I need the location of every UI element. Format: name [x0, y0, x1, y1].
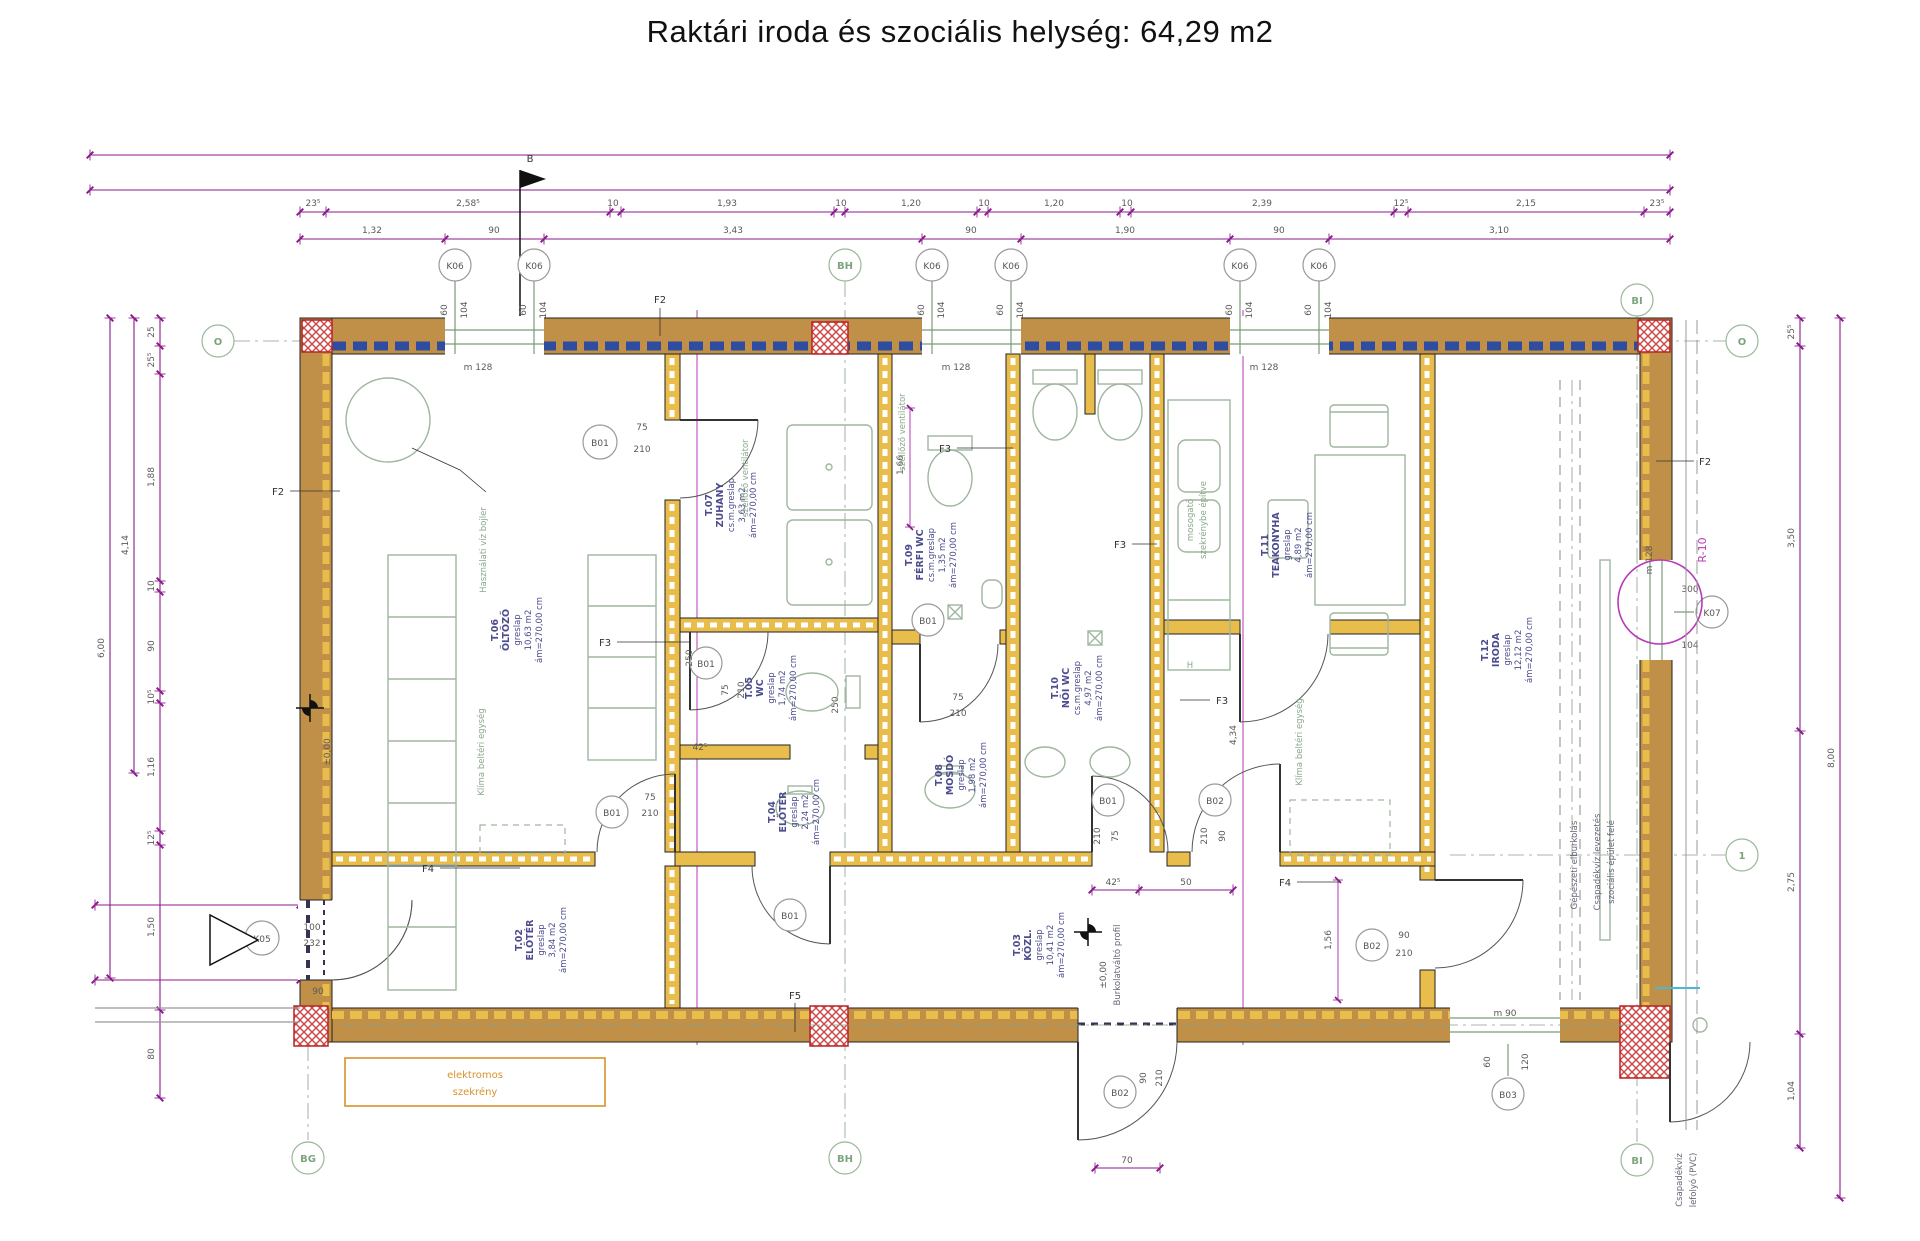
svg-text:ám=270,00 cm: ám=270,00 cm: [789, 655, 799, 721]
svg-text:ám=270,00 cm: ám=270,00 cm: [1057, 912, 1067, 978]
wall-openings: [298, 316, 1674, 1044]
door-b01-ferfiwc: B01 75 210: [912, 604, 998, 722]
svg-text:F5: F5: [789, 991, 801, 1002]
klima-unit-dashed: [1290, 800, 1390, 855]
svg-text:TEAKONYHA: TEAKONYHA: [1271, 512, 1282, 578]
csapadek-label: Csapadékvíz levezetés: [1592, 813, 1603, 910]
dim-label: 25⁵: [1787, 324, 1797, 339]
downpipe-label: Csapadékvíz: [1674, 1153, 1685, 1207]
dim-label: 80: [147, 1048, 157, 1060]
svg-text:elektromos: elektromos: [447, 1070, 503, 1081]
boiler-label: Használati víz bojler: [479, 507, 489, 593]
dim-label: 2,58⁵: [456, 199, 480, 209]
dim-label: 10: [607, 199, 619, 209]
svg-text:cs.m.greslap: cs.m.greslap: [727, 478, 737, 532]
svg-text:T.10: T.10: [1050, 677, 1061, 699]
svg-text:F3: F3: [939, 444, 951, 455]
svg-text:60: 60: [917, 304, 927, 316]
dim-label: 1,90: [1115, 226, 1135, 236]
svg-text:ZUHANY: ZUHANY: [715, 483, 726, 528]
electrical-cabinet: elektromos szekrény: [345, 1058, 605, 1106]
dim-label: 1,50: [147, 917, 157, 937]
svg-text:greslap: greslap: [1503, 634, 1513, 665]
svg-text:210: 210: [1093, 827, 1103, 844]
dim-label: 1,88: [147, 467, 157, 487]
room-label-t05: T.05WC greslap1,74 m2 ám=270,00 cm: [744, 655, 799, 721]
svg-text:90: 90: [1139, 1072, 1149, 1084]
svg-text:210: 210: [1155, 1069, 1165, 1086]
dim-label: 1,04: [1787, 1081, 1797, 1101]
svg-text:T.06: T.06: [490, 619, 501, 641]
downpipe-label: lefolyó (PVC): [1688, 1153, 1699, 1208]
klima-unit-dashed: [480, 825, 565, 853]
svg-text:ám=270,00 cm: ám=270,00 cm: [559, 907, 569, 973]
svg-text:ám=270,00 cm: ám=270,00 cm: [979, 742, 989, 808]
svg-text:MOSDÓ: MOSDÓ: [944, 755, 956, 795]
grid-bubble-o-left: O: [214, 337, 223, 348]
dim-label: 2,15: [1516, 199, 1536, 209]
vent-symbol: [1088, 631, 1102, 645]
svg-text:KÖZL.: KÖZL.: [1023, 929, 1034, 961]
dim-label: 1,20: [901, 199, 921, 209]
svg-text:3,84 m2: 3,84 m2: [548, 922, 558, 957]
dim-label: 10: [978, 199, 990, 209]
svg-text:4,89 m2: 4,89 m2: [1294, 527, 1304, 562]
svg-text:210: 210: [1395, 949, 1412, 959]
sill-label: m 128: [942, 363, 971, 373]
room-label-t06: T.06ÖLTÖZŐ greslap10,63 m2 ám=270,00 cm: [490, 597, 545, 663]
dim-label: 8,00: [1827, 748, 1837, 768]
svg-text:60: 60: [519, 304, 529, 316]
dim-label: 6,00: [97, 638, 107, 658]
boiler: [346, 378, 486, 492]
svg-text:B01: B01: [697, 660, 715, 670]
window-k06-2: [922, 316, 1021, 356]
svg-text:T.12: T.12: [1480, 639, 1491, 661]
dim-label: 23⁵: [305, 199, 320, 209]
svg-text:greslap: greslap: [957, 759, 967, 790]
shower-trays: [787, 425, 872, 605]
sink-label: mosogató: [1185, 499, 1196, 541]
svg-text:F3: F3: [599, 638, 611, 649]
svg-text:T.11: T.11: [1260, 534, 1271, 556]
svg-text:FÉRFI WC: FÉRFI WC: [914, 529, 926, 580]
annotations: Használati víz bojler szellőző ventiláto…: [272, 295, 1711, 1207]
dim-label: 2,75: [1787, 872, 1797, 892]
svg-text:ám=270,00 cm: ám=270,00 cm: [535, 597, 545, 663]
left-dimension-lines: 25 25⁵ 1,88 10 90 10⁵ 1,16 12⁵ 1,50 80 4…: [95, 318, 300, 1098]
svg-text:B01: B01: [603, 809, 621, 819]
svg-text:1,74 m2: 1,74 m2: [778, 670, 788, 705]
svg-text:m 90: m 90: [1493, 1009, 1516, 1019]
grid-bubble-bg-bottom: BG: [300, 1154, 316, 1165]
h-mark: H: [1187, 661, 1193, 671]
sill-label: m 128: [464, 363, 493, 373]
svg-text:T.02: T.02: [514, 929, 525, 951]
svg-text:50: 50: [1180, 878, 1192, 888]
door-porch: [1670, 1042, 1750, 1122]
dim-label: 1,32: [362, 226, 382, 236]
dim-label: 12⁵: [147, 830, 157, 845]
svg-text:T.08: T.08: [934, 764, 945, 786]
window-k06-3: [1230, 316, 1329, 356]
svg-text:K07: K07: [1703, 609, 1720, 619]
svg-text:ám=270,00 cm: ám=270,00 cm: [812, 779, 822, 845]
room-label-t03: T.03KÖZL. greslap10,41 m2 ám=270,00 cm: [1012, 912, 1067, 978]
svg-text:2,24 m2: 2,24 m2: [801, 794, 811, 829]
door-teakonyha-south: [1240, 634, 1328, 722]
svg-text:greslap: greslap: [537, 924, 547, 955]
window-k06-1: [445, 316, 544, 356]
door-b01-eloter: B01: [752, 866, 830, 944]
dim-label: 2,39: [1252, 199, 1272, 209]
dim-label: 90: [1273, 226, 1285, 236]
svg-text:B01: B01: [919, 617, 937, 627]
svg-text:greslap: greslap: [1283, 529, 1293, 560]
svg-text:42⁵: 42⁵: [1105, 878, 1120, 888]
dim-label: 10⁵: [147, 689, 157, 704]
svg-text:K06: K06: [1310, 262, 1328, 272]
svg-text:K06: K06: [923, 262, 941, 272]
svg-text:T.07: T.07: [704, 494, 715, 516]
outer-walls: [300, 318, 1672, 1042]
sill-label: m 128: [1250, 363, 1279, 373]
svg-text:cs.m.greslap: cs.m.greslap: [927, 528, 937, 582]
svg-text:210: 210: [949, 709, 966, 719]
svg-text:104: 104: [1016, 301, 1026, 318]
r10-label: R-10: [1696, 537, 1709, 562]
dim-label: 25⁵: [147, 352, 157, 367]
entrance-arrow: [210, 915, 258, 965]
csapadek-label: szociális épület felé: [1606, 820, 1617, 904]
door-b02-rear: B02 90 210 70: [1078, 1042, 1177, 1168]
svg-text:10,41 m2: 10,41 m2: [1046, 925, 1056, 966]
grid-bubble-o-right: O: [1738, 337, 1747, 348]
svg-text:K06: K06: [446, 262, 464, 272]
vent-label: szellőző ventilátor: [741, 439, 751, 517]
svg-text:szekrény: szekrény: [453, 1086, 498, 1098]
grid-bubble-1-right: 1: [1739, 851, 1746, 862]
svg-text:4,34: 4,34: [1229, 725, 1239, 745]
dim-label: 90: [147, 640, 157, 652]
svg-text:±0,00: ±0,00: [323, 738, 333, 766]
svg-text:60: 60: [996, 304, 1006, 316]
grid-bubble-bi-bottom: BI: [1631, 1156, 1642, 1167]
grid-bubble-bh-top: BH: [837, 261, 853, 272]
right-dimension-lines: 25⁵ 3,50 2,75 1,04 8,00: [1787, 318, 1840, 1198]
svg-text:75: 75: [952, 693, 963, 703]
dim-label: 90: [488, 226, 500, 236]
svg-text:B01: B01: [1099, 797, 1117, 807]
dim-label: 10: [147, 580, 157, 592]
dim-label: 3,43: [723, 226, 743, 236]
svg-text:greslap: greslap: [1035, 929, 1045, 960]
svg-text:±0,00: ±0,00: [1099, 961, 1109, 989]
svg-text:F4: F4: [422, 864, 434, 875]
dim-label: 1,93: [717, 199, 737, 209]
lockers-right: [588, 555, 656, 760]
svg-text:104: 104: [937, 301, 947, 318]
svg-text:300: 300: [1681, 585, 1698, 595]
svg-text:70: 70: [1121, 1156, 1133, 1166]
svg-text:210: 210: [641, 809, 658, 819]
door-b02-iroda: B02 90 210 1,56: [1324, 880, 1523, 968]
svg-text:B02: B02: [1111, 1089, 1129, 1099]
svg-text:ELŐTÉR: ELŐTÉR: [524, 919, 536, 961]
rc-columns: [294, 320, 1670, 1078]
svg-text:F4: F4: [1279, 878, 1291, 889]
svg-text:B02: B02: [1363, 942, 1381, 952]
svg-text:B01: B01: [781, 912, 799, 922]
door-b01-t02: B01 75 210: [596, 774, 675, 852]
svg-text:120: 120: [1521, 1053, 1531, 1070]
svg-text:ám=270,00 cm: ám=270,00 cm: [1305, 512, 1315, 578]
svg-text:ám=270,00 cm: ám=270,00 cm: [1095, 655, 1105, 721]
elevation-marker: ±0,00: [1074, 918, 1109, 989]
svg-text:B03: B03: [1499, 1091, 1517, 1101]
svg-text:210: 210: [1200, 827, 1210, 844]
svg-text:greslap: greslap: [513, 614, 523, 645]
svg-text:F3: F3: [1216, 696, 1228, 707]
svg-text:60: 60: [1304, 304, 1314, 316]
dim-label: 25: [147, 326, 157, 337]
svg-text:K06: K06: [1002, 262, 1020, 272]
svg-text:104: 104: [460, 301, 470, 318]
svg-text:K06: K06: [525, 262, 543, 272]
floor-plan-page: Raktári iroda és szociális helység: 64,2…: [0, 0, 1920, 1241]
gepeszet-label: Gépészeti elburkolás: [1569, 820, 1580, 909]
window-k07: [1638, 560, 1674, 660]
window-markers: K06 60 104 K06 60 104 K06 60 104 K06 60 …: [439, 249, 1728, 651]
svg-text:T.05: T.05: [744, 677, 755, 699]
svg-text:greslap: greslap: [790, 796, 800, 827]
svg-text:F2: F2: [272, 487, 284, 498]
svg-text:75: 75: [644, 793, 655, 803]
svg-text:ELŐTÉR: ELŐTÉR: [777, 791, 789, 833]
room-label-t12: T.12IRODA greslap12,12 m2 ám=270,00 cm: [1480, 617, 1535, 683]
room-label-t10: T.10NŐI WC cs.m.greslap4,97 m2 ám=270,00…: [1050, 655, 1105, 721]
room-label-t02: T.02ELŐTÉR greslap3,84 m2 ám=270,00 cm: [514, 907, 569, 973]
svg-text:4,97 m2: 4,97 m2: [1084, 670, 1094, 705]
klima-label: Klíma beltéri egység: [476, 708, 487, 795]
svg-text:250: 250: [685, 649, 695, 666]
svg-text:B01: B01: [591, 439, 609, 449]
svg-text:K06: K06: [1231, 262, 1249, 272]
floor-plan-canvas: 23⁵ 2,58⁵ 10 1,93 10 1,20 10 1,20 10 2,3…: [0, 0, 1920, 1241]
vent-label: szellőző ventilátor: [898, 393, 908, 471]
svg-text:B02: B02: [1206, 797, 1224, 807]
dim-label: 10: [1121, 199, 1133, 209]
svg-text:T.04: T.04: [767, 801, 778, 823]
room-label-t04: T.04ELŐTÉR greslap2,24 m2 ám=270,00 cm: [767, 779, 822, 845]
svg-text:75: 75: [636, 423, 647, 433]
washbasins-t10: [1025, 747, 1130, 777]
svg-text:100: 100: [303, 923, 320, 933]
svg-text:104: 104: [1324, 301, 1334, 318]
svg-text:90: 90: [312, 987, 324, 997]
dim-label: 4,14: [121, 535, 131, 555]
svg-text:42⁵: 42⁵: [692, 743, 707, 753]
svg-text:cs.m.greslap: cs.m.greslap: [1073, 661, 1083, 715]
dim-label: 23⁵: [1649, 199, 1664, 209]
svg-text:210: 210: [633, 445, 650, 455]
grid-bubble-bh-bottom: BH: [837, 1154, 853, 1165]
svg-text:ám=270,00 cm: ám=270,00 cm: [949, 522, 959, 588]
dim-label: 3,50: [1787, 528, 1797, 548]
dim-label: 90: [965, 226, 977, 236]
dim-label: 1,16: [147, 757, 157, 777]
svg-text:1,56: 1,56: [1324, 930, 1334, 950]
svg-text:90: 90: [1218, 830, 1228, 842]
svg-text:WC: WC: [755, 679, 766, 696]
svg-text:75: 75: [721, 684, 731, 695]
svg-text:1,98 m2: 1,98 m2: [968, 757, 978, 792]
svg-text:greslap: greslap: [767, 672, 777, 703]
grid-bubble-bi-top: BI: [1631, 296, 1642, 307]
svg-text:ám=270,00 cm: ám=270,00 cm: [1525, 617, 1535, 683]
klima-label: Klíma beltéri egység: [1294, 698, 1305, 785]
svg-text:90: 90: [1398, 931, 1410, 941]
svg-text:F2: F2: [654, 295, 666, 306]
lockers-left: [388, 555, 456, 990]
svg-text:104: 104: [539, 301, 549, 318]
svg-text:104: 104: [1245, 301, 1255, 318]
dim-label: 3,10: [1489, 226, 1509, 236]
top-dimension-lines: 23⁵ 2,58⁵ 10 1,93 10 1,20 10 1,20 10 2,3…: [90, 155, 1670, 239]
svg-text:12,12 m2: 12,12 m2: [1514, 630, 1524, 671]
section-flag-b: B: [527, 154, 534, 165]
dim-label: 1,20: [1044, 199, 1064, 209]
svg-text:60: 60: [440, 304, 450, 316]
profile-label: Burkolatváltó profil: [1112, 925, 1123, 1006]
room-label-t09: T.09FÉRFI WC cs.m.greslap1,35 m2 ám=270,…: [904, 522, 959, 588]
room-label-t08: T.08MOSDÓ greslap1,98 m2 ám=270,00 cm: [934, 742, 989, 808]
urinal-t09: [982, 580, 1002, 608]
sink-label: szekrénybe építve: [1198, 481, 1209, 559]
svg-text:10,63 m2: 10,63 m2: [524, 610, 534, 651]
svg-text:T.03: T.03: [1012, 934, 1023, 956]
svg-text:F2: F2: [1699, 457, 1711, 468]
dim-label: 12⁵: [1393, 199, 1408, 209]
svg-text:ÖLTÖZŐ: ÖLTÖZŐ: [501, 609, 512, 651]
svg-text:F3: F3: [1114, 540, 1126, 551]
svg-text:104: 104: [1681, 641, 1698, 651]
svg-text:75: 75: [1111, 830, 1121, 841]
svg-text:60: 60: [1225, 304, 1235, 316]
svg-text:T.09: T.09: [904, 544, 915, 566]
svg-text:60: 60: [1483, 1056, 1493, 1068]
svg-text:1,35 m2: 1,35 m2: [938, 537, 948, 572]
svg-text:IRODA: IRODA: [1491, 632, 1502, 667]
dim-label: 10: [835, 199, 847, 209]
svg-text:232: 232: [303, 939, 320, 949]
vent-symbol: [948, 605, 962, 619]
svg-text:NŐI WC: NŐI WC: [1061, 668, 1072, 708]
interior-partitions: [332, 354, 1435, 1008]
door-b02-teakonyha: B02 210 90: [1192, 764, 1280, 852]
